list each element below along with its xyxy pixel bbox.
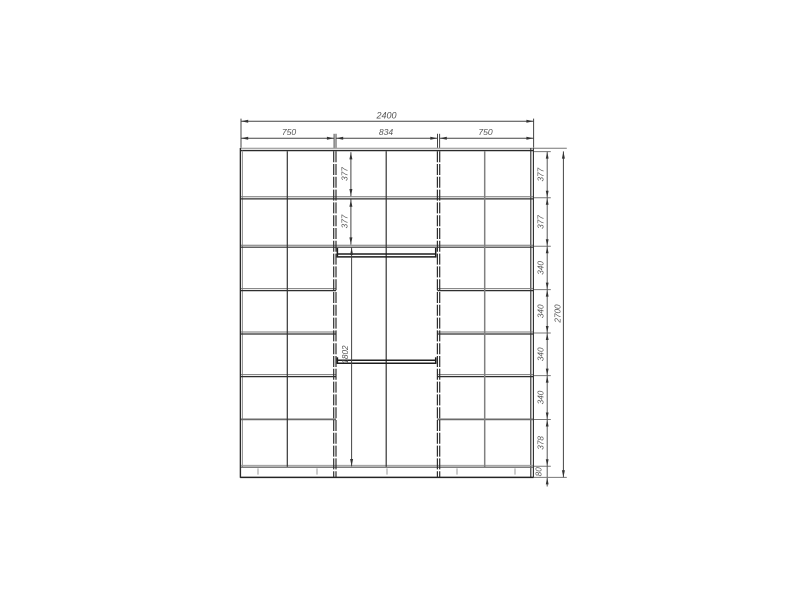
svg-text:340: 340 [536,261,545,275]
svg-text:1802: 1802 [341,345,350,364]
svg-text:378: 378 [536,436,545,450]
svg-text:377: 377 [340,214,349,228]
svg-text:340: 340 [536,347,545,361]
svg-text:377: 377 [536,167,545,181]
svg-text:377: 377 [340,167,349,181]
svg-text:340: 340 [536,390,545,404]
svg-text:340: 340 [536,304,545,318]
svg-text:2700: 2700 [554,304,563,324]
svg-text:80: 80 [535,467,544,477]
svg-text:750: 750 [282,127,297,137]
svg-text:750: 750 [478,127,493,137]
svg-text:2400: 2400 [375,110,396,120]
svg-text:834: 834 [379,127,394,137]
svg-text:377: 377 [536,215,545,229]
